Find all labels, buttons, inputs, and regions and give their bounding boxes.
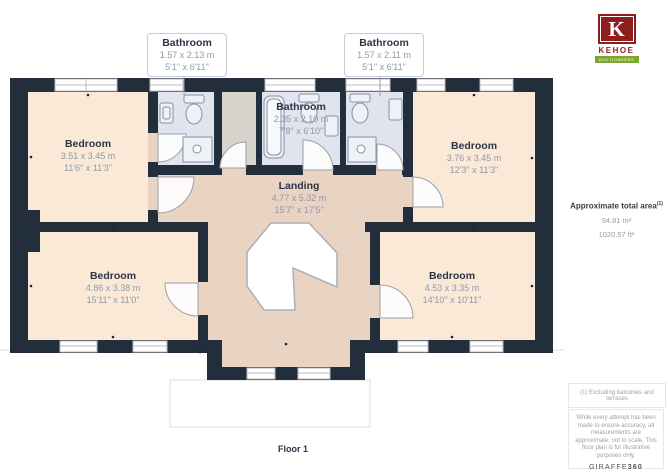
window [55, 79, 117, 91]
window [150, 79, 183, 91]
room-name: Bathroom [153, 37, 221, 50]
room-dim-imperial: 5'1" x 6'11" [153, 62, 221, 74]
window [133, 341, 167, 352]
sink-icon [389, 99, 402, 120]
shower-icon [348, 137, 376, 162]
callout-bathroom-top-right: Bathroom 1.57 x 2.11 m 5'1" x 6'11" [344, 33, 424, 77]
window [346, 79, 390, 91]
disclaimer-text: While every attempt has been made to ens… [573, 415, 659, 460]
callout-bathroom-top-left: Bathroom 1.57 x 2.13 m 5'1" x 6'11" [147, 33, 227, 77]
window [470, 341, 503, 352]
toilet-icon [299, 94, 319, 123]
total-area-title: Approximate total area(1) [565, 201, 668, 211]
disclaimer-card: While every attempt has been made to ens… [568, 409, 664, 469]
logo-name: KEHOE [599, 46, 635, 55]
logo-k-icon: K [598, 14, 636, 44]
giraffe360-brand: GIRAFFE360 [573, 464, 659, 472]
toilet-icon [184, 95, 204, 124]
bedroom-top-left-floor [28, 92, 148, 222]
window [298, 368, 330, 379]
shower-icon [183, 137, 212, 162]
total-area-ft2: 1020.57 ft² [565, 230, 668, 239]
window [398, 341, 428, 352]
room-dim-imperial: 5'1" x 6'11" [350, 62, 418, 74]
total-area-block: Approximate total area(1) 94.81 m² 1020.… [565, 201, 668, 239]
window [247, 368, 275, 379]
window [417, 79, 445, 91]
brand-suffix: 360 [628, 464, 643, 471]
window [265, 79, 315, 91]
info-sidebar: K KEHOE AUCTIONEERS Approximate total ar… [565, 0, 668, 473]
sink-icon [160, 103, 173, 123]
footnote-text: (1) Excluding balconies and terraces [569, 390, 665, 402]
bedroom-bottom-right-floor [380, 232, 535, 340]
window [480, 79, 513, 91]
total-area-superscript: (1) [657, 201, 663, 207]
logo-tagline: AUCTIONEERS [595, 56, 639, 63]
kehoe-logo: K KEHOE AUCTIONEERS [565, 14, 668, 63]
total-area-m2: 94.81 m² [565, 216, 668, 225]
total-area-title-text: Approximate total area [570, 202, 657, 211]
footnote-card: (1) Excluding balconies and terraces [568, 383, 666, 408]
room-dim-metric: 1.57 x 2.13 m [153, 50, 221, 62]
brand-text: GIRAFFE [589, 464, 628, 471]
bathtub-icon [264, 96, 284, 158]
floorplan-page: { "rooms": { "bathroom_top_left": {"name… [0, 0, 668, 473]
window [60, 341, 97, 352]
room-name: Bathroom [350, 37, 418, 50]
room-dim-metric: 1.57 x 2.11 m [350, 50, 418, 62]
logo-letter: K [608, 19, 624, 40]
toilet-icon [350, 94, 370, 123]
sink-icon [325, 116, 338, 136]
floor-label: Floor 1 [258, 444, 328, 454]
